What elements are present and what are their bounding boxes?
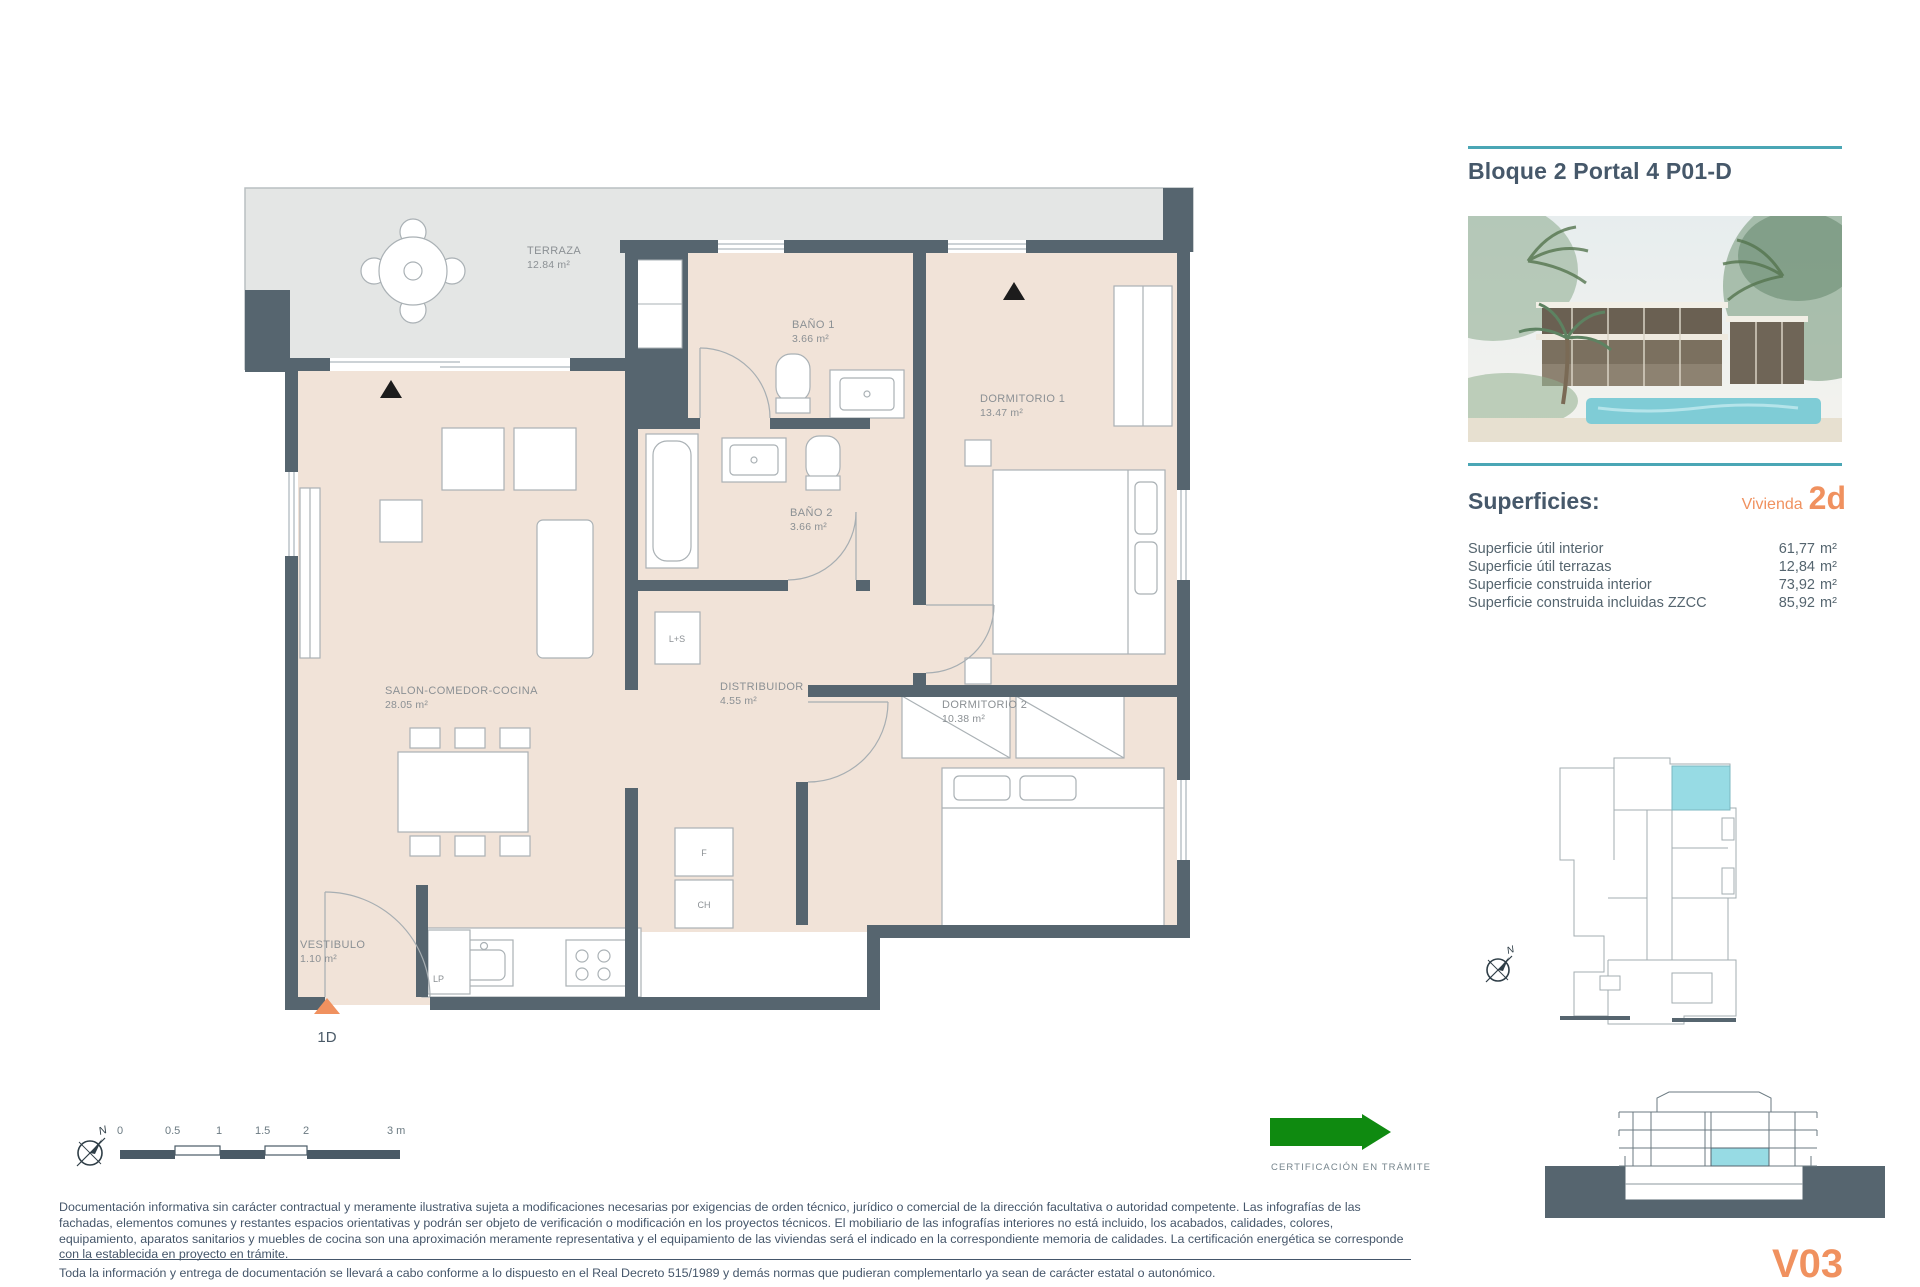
north-letter: N (1506, 944, 1517, 957)
row-label: Superficie construida incluidas ZZCC (1468, 594, 1765, 612)
superficies-header: Superficies: Vivienda 2d (1468, 480, 1846, 517)
legal-paragraph-1: Documentación informativa sin carácter c… (59, 1200, 1411, 1263)
room-label-dormitorio1: DORMITORIO 1 (980, 393, 1065, 405)
certification-arrow-icon (1270, 1114, 1392, 1154)
pillow (1135, 542, 1157, 594)
pillow (954, 776, 1010, 800)
svg-text:28.05 m²: 28.05 m² (385, 699, 428, 711)
highlighted-unit (1672, 766, 1730, 810)
row-unit: m² (1815, 576, 1846, 594)
window (285, 472, 298, 556)
toilet-tank (776, 398, 810, 413)
certification-label: CERTIFICACIÓN EN TRÁMITE (1271, 1162, 1431, 1173)
nightstand (965, 658, 991, 684)
unit-marker-label: 1D (317, 1029, 336, 1046)
closet-label-f: F (701, 848, 707, 858)
pillow (1135, 482, 1157, 534)
closet-label-ls: L+S (669, 634, 685, 644)
room-label-terraza: TERRAZA (527, 245, 581, 257)
superficies-row: Superficie construida interior 73,92 m² (1468, 576, 1846, 594)
north-letter: N (97, 1124, 108, 1138)
row-unit: m² (1815, 558, 1846, 576)
toilet (806, 436, 840, 480)
superficies-row: Superficie útil terrazas 12,84 m² (1468, 558, 1846, 576)
chair (455, 836, 485, 856)
closet-label-lp: LP (433, 974, 444, 984)
scale-tick: 1 (216, 1125, 222, 1137)
room-label-dormitorio2: DORMITORIO 2 (942, 699, 1027, 711)
superficies-row: Superficie útil interior 61,77 m² (1468, 540, 1846, 558)
closet-lp (428, 930, 470, 994)
scale-tick: 0 (117, 1125, 123, 1137)
nightstand (965, 440, 991, 466)
title-rule (1468, 146, 1842, 149)
room-label-salon: SALON-COMEDOR-COCINA (385, 685, 538, 697)
superficies-row: Superficie construida incluidas ZZCC 85,… (1468, 594, 1846, 612)
vivienda-label: Vivienda (1742, 496, 1803, 514)
chair (500, 728, 530, 748)
key-plan (1552, 748, 1762, 1044)
svg-text:10.38 m²: 10.38 m² (942, 713, 985, 725)
row-unit: m² (1815, 540, 1846, 558)
vivienda-code: 2d (1809, 480, 1846, 517)
svg-text:4.55 m²: 4.55 m² (720, 695, 757, 707)
kitchen-hob (566, 940, 628, 986)
row-value: 61,77 (1765, 540, 1815, 558)
scale-tick: 1.5 (255, 1125, 270, 1137)
row-label: Superficie útil interior (1468, 540, 1765, 558)
window (1177, 490, 1190, 580)
chair (410, 836, 440, 856)
superficies-heading: Superficies: (1468, 488, 1742, 515)
legal-paragraph-2: Toda la información y entrega de documen… (59, 1266, 1411, 1282)
page-title: Bloque 2 Portal 4 P01-D (1468, 158, 1732, 185)
side-table (380, 500, 422, 542)
row-value: 12,84 (1765, 558, 1815, 576)
legal-divider (59, 1259, 1411, 1260)
hero-render (1468, 216, 1842, 442)
chair (455, 728, 485, 748)
armchair (514, 428, 576, 490)
window (1177, 780, 1190, 860)
superficies-rule (1468, 463, 1842, 466)
room-label-vestibulo: VESTIBULO (300, 939, 365, 951)
highlighted-unit-section (1711, 1148, 1769, 1166)
terrace-pillar (245, 290, 290, 372)
superficies-table: Superficie útil interior 61,77 m² Superf… (1468, 540, 1846, 612)
closet-label-ch: CH (698, 900, 711, 910)
room-label-bano1: BAÑO 1 (792, 318, 835, 331)
armchair (442, 428, 504, 490)
svg-text:3.66 m²: 3.66 m² (790, 521, 827, 533)
sofa (537, 520, 593, 658)
scale-tick: 2 (303, 1125, 309, 1137)
floor-plan: TERRAZA 12.84 m² BAÑO 1 3.66 m² DORMITOR… (230, 140, 1270, 1060)
row-value: 73,92 (1765, 576, 1815, 594)
window (948, 240, 1026, 253)
north-compass-icon: N (68, 1122, 116, 1174)
scale-bar: 0 0.5 1 1.5 2 3 m (115, 1120, 415, 1168)
scale-tick: 3 m (387, 1125, 405, 1137)
svg-text:1.10 m²: 1.10 m² (300, 953, 337, 965)
row-label: Superficie útil terrazas (1468, 558, 1765, 576)
dining-table (398, 752, 528, 832)
toilet-tank (806, 476, 840, 490)
chair (410, 728, 440, 748)
north-compass-icon: N (1478, 942, 1522, 990)
window (718, 240, 784, 253)
pillow (1020, 776, 1076, 800)
building-section (1545, 1088, 1885, 1220)
toilet (776, 354, 810, 402)
svg-text:13.47 m²: 13.47 m² (980, 407, 1023, 419)
room-label-distribuidor: DISTRIBUIDOR (720, 681, 804, 693)
row-label: Superficie construida interior (1468, 576, 1765, 594)
scale-tick: 0.5 (165, 1125, 180, 1137)
row-value: 85,92 (1765, 594, 1815, 612)
brochure-page: { "header": { "title": "Bloque 2 Portal … (0, 0, 1920, 1280)
svg-text:12.84 m²: 12.84 m² (527, 259, 570, 271)
svg-text:3.66 m²: 3.66 m² (792, 333, 829, 345)
row-unit: m² (1815, 594, 1846, 612)
sliding-door (330, 358, 570, 371)
version-code: V03 (1772, 1242, 1843, 1287)
chair (500, 836, 530, 856)
room-label-bano2: BAÑO 2 (790, 506, 833, 519)
